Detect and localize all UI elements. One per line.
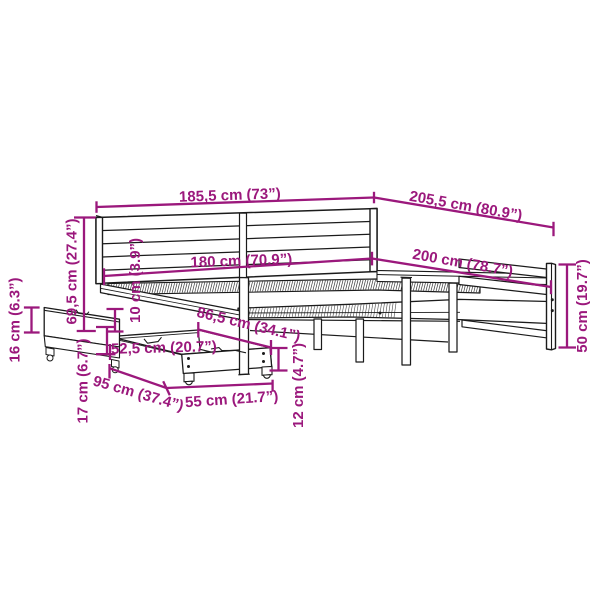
svg-text:185,5 cm (73”): 185,5 cm (73”) xyxy=(179,185,281,206)
svg-text:17 cm (6.7”): 17 cm (6.7”) xyxy=(75,338,92,423)
svg-text:69,5 cm (27.4”): 69,5 cm (27.4”) xyxy=(64,219,81,325)
svg-text:180 cm (70.9”): 180 cm (70.9”) xyxy=(190,251,292,272)
svg-text:52,5 cm (20.7”): 52,5 cm (20.7”) xyxy=(111,338,217,358)
svg-text:16 cm (6.3”): 16 cm (6.3”) xyxy=(7,277,24,362)
svg-text:10 cm (3.9”): 10 cm (3.9”) xyxy=(127,238,144,323)
svg-text:12 cm (4.7”): 12 cm (4.7”) xyxy=(290,343,307,428)
svg-text:50 cm (19.7”): 50 cm (19.7”) xyxy=(574,259,591,352)
